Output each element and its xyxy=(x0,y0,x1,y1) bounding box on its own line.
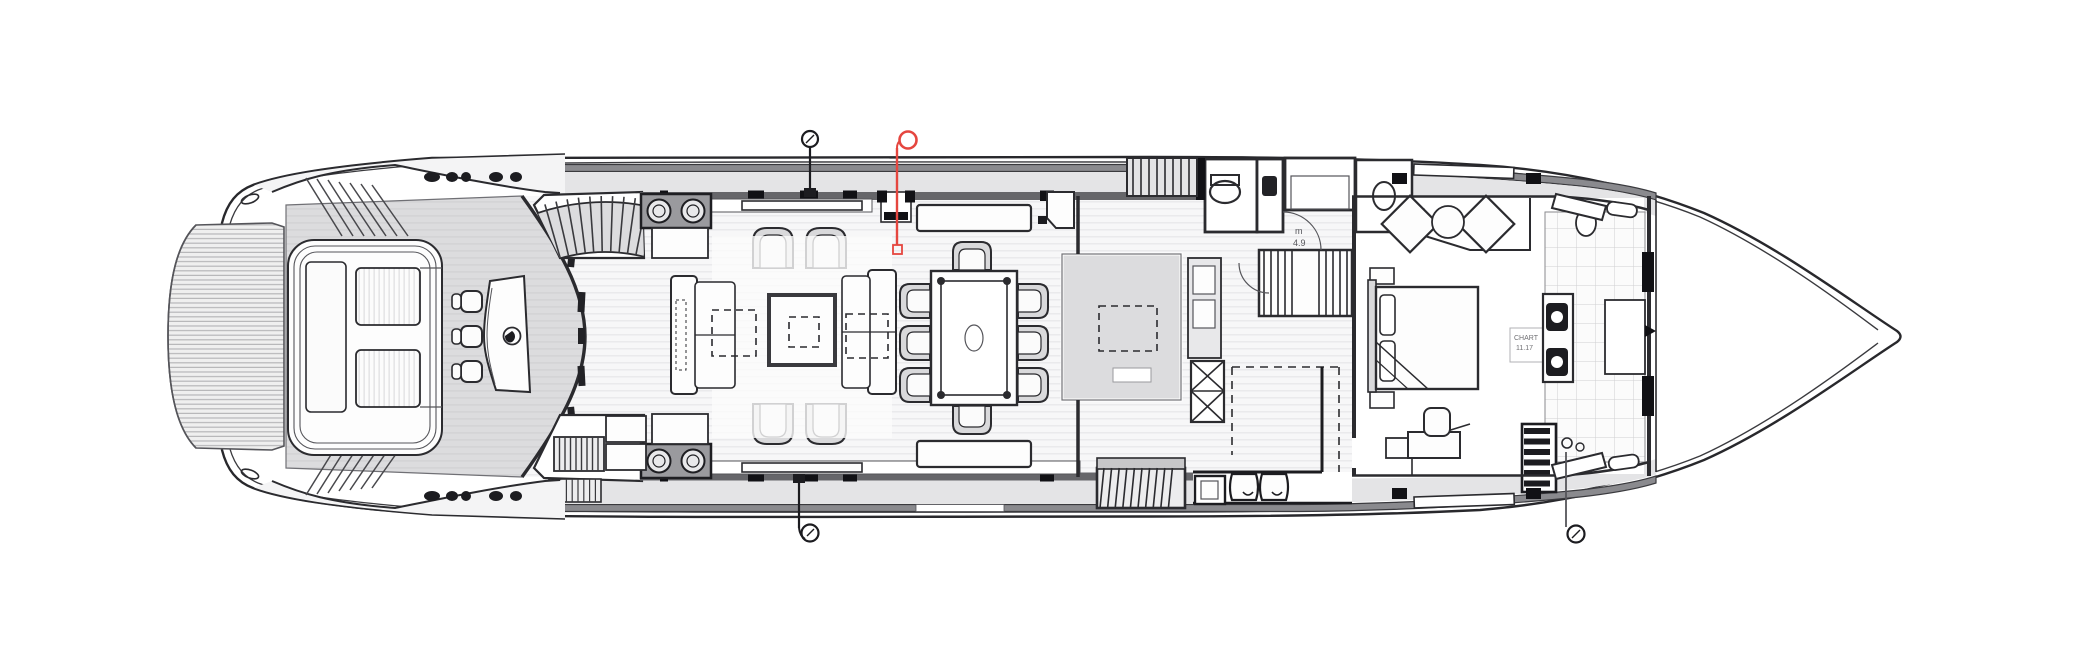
svg-text:11.17: 11.17 xyxy=(1516,345,1533,352)
svg-text:4.9: 4.9 xyxy=(1293,238,1306,248)
svg-text:m: m xyxy=(1295,226,1303,236)
svg-text:CHART: CHART xyxy=(1514,335,1539,342)
